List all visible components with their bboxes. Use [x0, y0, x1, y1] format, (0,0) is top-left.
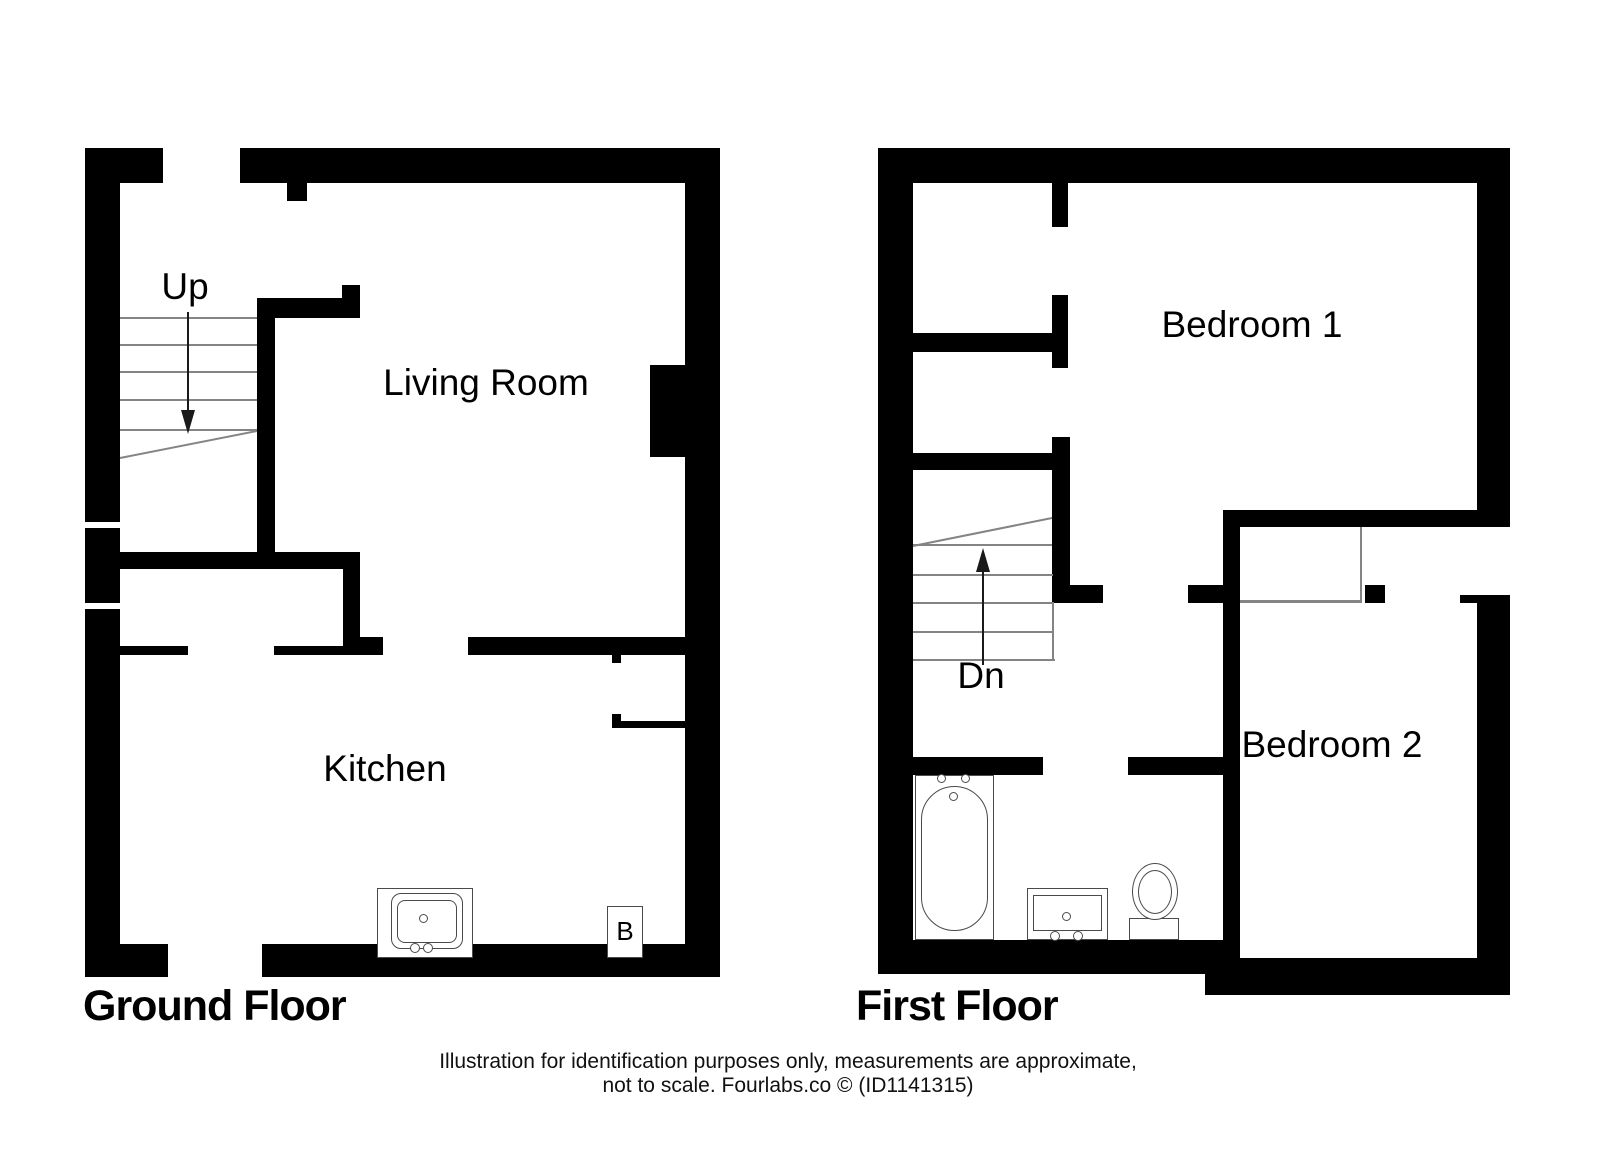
boiler-box: B [607, 906, 643, 958]
bathtub [921, 786, 988, 931]
basin-drain-icon [1062, 912, 1071, 921]
bath-tap-icon [937, 774, 946, 783]
disclaimer: Illustration for identification purposes… [288, 1050, 1288, 1098]
stair-tread [120, 344, 257, 346]
wall-segment [1223, 510, 1510, 527]
wall-segment [878, 148, 913, 974]
toilet-cistern [1129, 918, 1179, 940]
wall-segment [1365, 585, 1385, 603]
wall-segment [612, 714, 621, 728]
stair-tread [120, 399, 257, 401]
closet-line [1360, 527, 1362, 603]
wall-segment [612, 721, 686, 728]
wall-segment [878, 940, 1240, 974]
wall-segment [685, 148, 720, 977]
sink-tap-icon [410, 943, 420, 953]
stair-wall [257, 298, 275, 552]
first-floor-title: First Floor [856, 982, 1058, 1031]
bath-drain-icon [949, 792, 958, 801]
wall-segment [342, 285, 360, 298]
disclaimer-line1: Illustration for identification purposes… [288, 1050, 1288, 1074]
floorplan-canvas: B Up Livi [0, 0, 1600, 1155]
stair-tread [120, 317, 257, 319]
wall-segment [1052, 585, 1103, 603]
wall-segment [468, 637, 720, 655]
wall-segment [1205, 958, 1510, 995]
wall-segment [878, 757, 1043, 775]
basin-tap-icon [1050, 931, 1060, 941]
toilet-seat [1138, 870, 1172, 914]
wall-segment [878, 453, 1068, 470]
bedroom2-label: Bedroom 2 [1137, 724, 1527, 766]
gf-stairs-label: Up [135, 266, 235, 308]
wall-segment [878, 148, 1510, 183]
ground-floor-title: Ground Floor [83, 982, 346, 1031]
bedroom1-label: Bedroom 1 [1057, 304, 1447, 346]
disclaimer-line2: not to scale. Fourlabs.co © (ID1141315) [288, 1074, 1288, 1098]
wall-joint-seam [85, 603, 120, 609]
stair-tread [120, 371, 257, 373]
stair-tread [913, 602, 1053, 604]
wall-segment [240, 148, 720, 183]
stair-tread [120, 429, 257, 431]
wall-segment [85, 148, 163, 183]
boiler-label: B [608, 907, 642, 956]
wall-segment [85, 944, 168, 977]
wall-segment [1052, 183, 1068, 227]
stair-winder-line [120, 431, 257, 458]
wall-segment [85, 646, 188, 655]
wall-segment [1477, 595, 1510, 995]
wall-segment [612, 655, 621, 663]
dn-arrow-head [976, 548, 990, 572]
stair-tread [913, 631, 1053, 633]
basin-tap-icon [1073, 931, 1083, 941]
sink-tap-icon [423, 943, 433, 953]
stair-edge-line [1052, 602, 1054, 661]
wall-segment [1477, 148, 1510, 527]
wall-segment [287, 183, 307, 201]
wall-segment [343, 569, 360, 637]
living-room-label: Living Room [336, 362, 636, 404]
ff-stairs-label: Dn [931, 655, 1031, 697]
stair-tread [913, 574, 1053, 576]
wall-segment [913, 333, 1068, 352]
window-jamb [1460, 595, 1480, 603]
wall-segment [262, 944, 720, 977]
stair-winder-line [913, 518, 1052, 546]
wall-joint-seam [85, 522, 120, 528]
wall-segment [274, 646, 383, 655]
sink-drain-icon [419, 914, 428, 923]
stair-wall [1052, 437, 1070, 603]
closet-line [1240, 600, 1362, 603]
wall-segment [85, 552, 360, 569]
bath-tap-icon [961, 774, 970, 783]
chimney-breast [650, 365, 685, 457]
kitchen-sink-basin [397, 900, 457, 943]
kitchen-label: Kitchen [235, 748, 535, 790]
stair-tread [913, 544, 1052, 546]
wall-segment [1188, 585, 1223, 603]
